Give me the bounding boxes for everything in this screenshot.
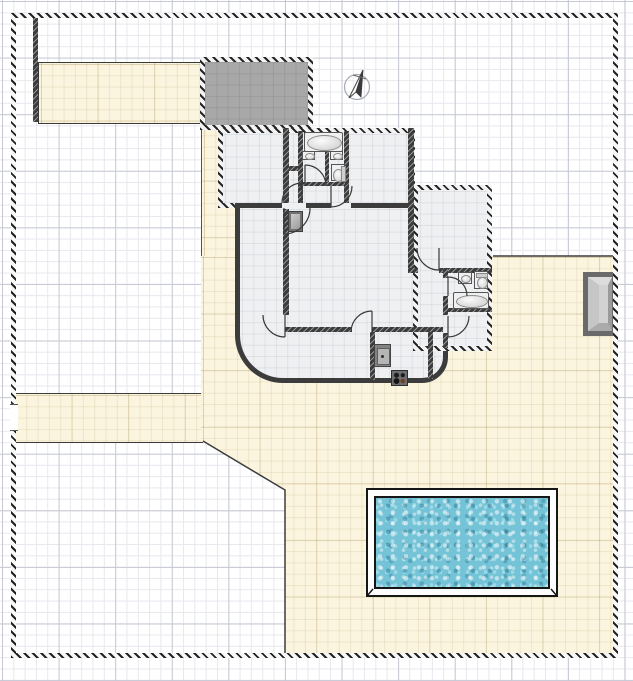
floor-plan-canvas [0, 0, 633, 681]
west-gate-opening[interactable] [10, 404, 18, 431]
property-boundary[interactable] [11, 13, 618, 658]
